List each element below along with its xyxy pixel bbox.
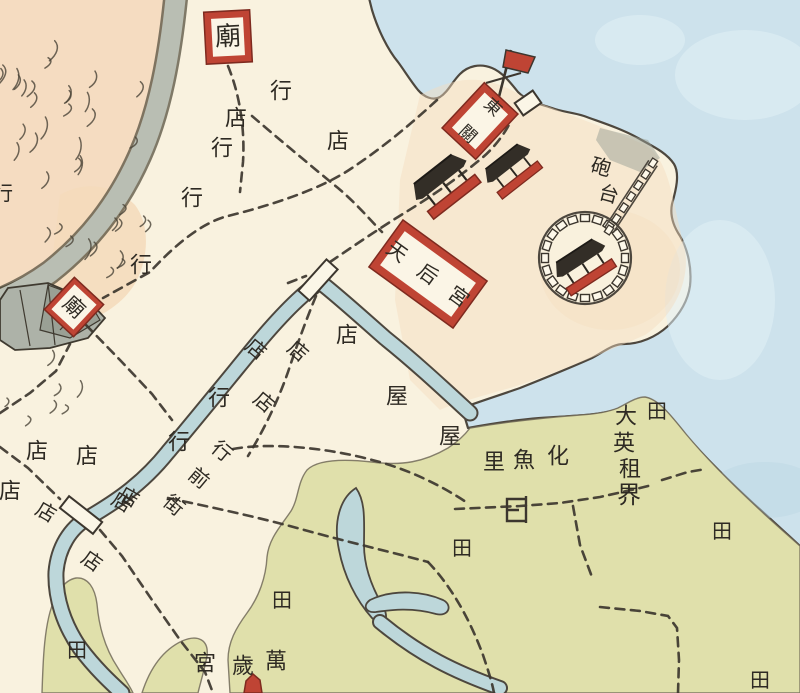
map-label: 店 [327,130,349,155]
map-label: 行 [211,137,233,162]
map-label: 店 [26,440,48,465]
map-label: 行 [130,254,152,279]
map-label: 魚 [513,449,535,474]
map-label: 宮 [194,652,216,677]
map-label: 行 [168,431,190,456]
map-label: 田 [272,588,292,612]
fort-crenel [542,254,549,263]
map-label: 田 [750,668,770,692]
map-label: 行 [181,187,203,212]
map-drawing: 廟廟東關天后宮行店行店行行行砲台店店店店行屋屋行行前街店店店店店店店化魚里大英租… [0,0,800,693]
map-label: 行 [270,80,292,105]
map-label: 歲 [232,655,254,680]
map-label: 行 [0,181,13,205]
map-label: 田 [647,399,667,423]
map-label: 店 [225,107,247,132]
map-label: 大 [615,405,637,430]
temple-north-box: 廟 [204,10,253,64]
map-label: 英 [613,432,635,457]
fort-crenel [622,254,629,263]
fort-crenel [581,215,590,222]
map-label: 店 [0,480,21,505]
map-label: 化 [547,445,569,470]
map-label: 屋 [439,425,461,450]
map-label: 里 [483,451,505,476]
map-label: 田 [712,519,732,543]
map-label: 租 [619,458,641,483]
map-label: 店 [336,324,358,349]
fort-crenel [581,295,590,302]
map-label: 行 [208,387,230,412]
map-label: 界 [617,481,641,509]
map-label: 店 [76,445,98,470]
temple-north-box-label: 廟 [214,21,242,52]
map-label: 萬 [265,650,287,675]
sea-wash [595,15,685,65]
historical-map-canvas: 廟廟東關天后宮行店行店行行行砲台店店店店行屋屋行行前街店店店店店店店化魚里大英租… [0,0,800,693]
map-label: 田 [67,638,87,662]
map-label: 田 [452,536,472,560]
map-label: 屋 [386,385,408,410]
